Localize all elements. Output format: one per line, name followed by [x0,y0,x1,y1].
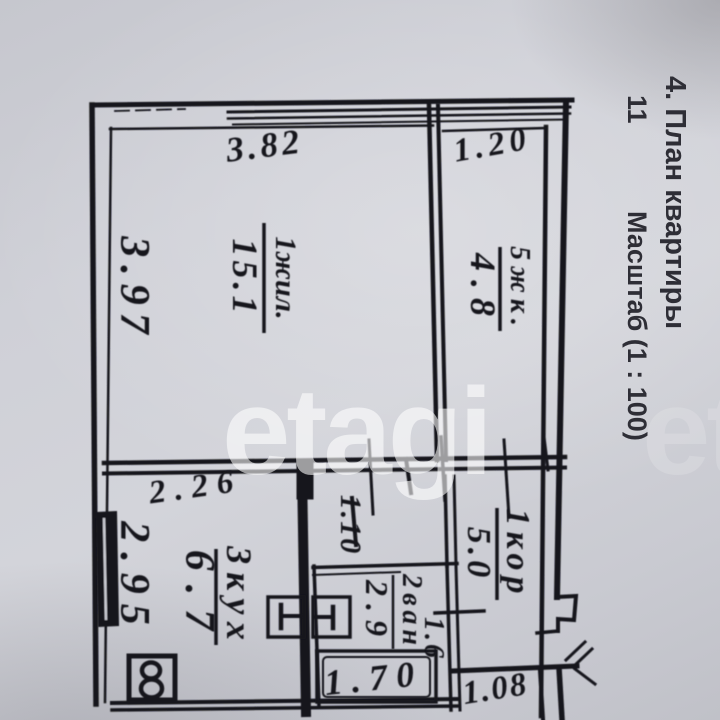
svg-text:2.9: 2.9 [359,579,395,644]
svg-text:11: 11 [622,95,652,124]
svg-text:6.7: 6.7 [176,550,222,645]
svg-text:et: et [642,364,720,501]
svg-text:Масштаб (1 : 100): Масштаб (1 : 100) [622,211,652,441]
svg-text:5.0: 5.0 [460,527,497,582]
svg-text:1жил.: 1жил. [269,236,302,319]
svg-text:etagi: etagi [222,364,489,501]
svg-text:1.10: 1.10 [334,495,367,556]
svg-text:5жк.: 5жк. [504,246,535,332]
svg-text:15.1: 15.1 [225,239,265,318]
svg-text:1.70: 1.70 [322,653,425,703]
svg-text:2.95: 2.95 [111,520,157,635]
svg-text:4.8: 4.8 [463,252,503,325]
svg-text:1.6: 1.6 [418,617,449,661]
svg-text:3кух: 3кух [219,545,259,648]
svg-text:3.97: 3.97 [111,235,157,342]
svg-text:4. План квартиры: 4. План квартиры [659,76,691,329]
svg-text:1кор: 1кор [499,509,536,600]
svg-text:3.82: 3.82 [223,122,305,170]
svg-text:1.08: 1.08 [460,666,531,712]
svg-text:1.20: 1.20 [451,121,534,170]
